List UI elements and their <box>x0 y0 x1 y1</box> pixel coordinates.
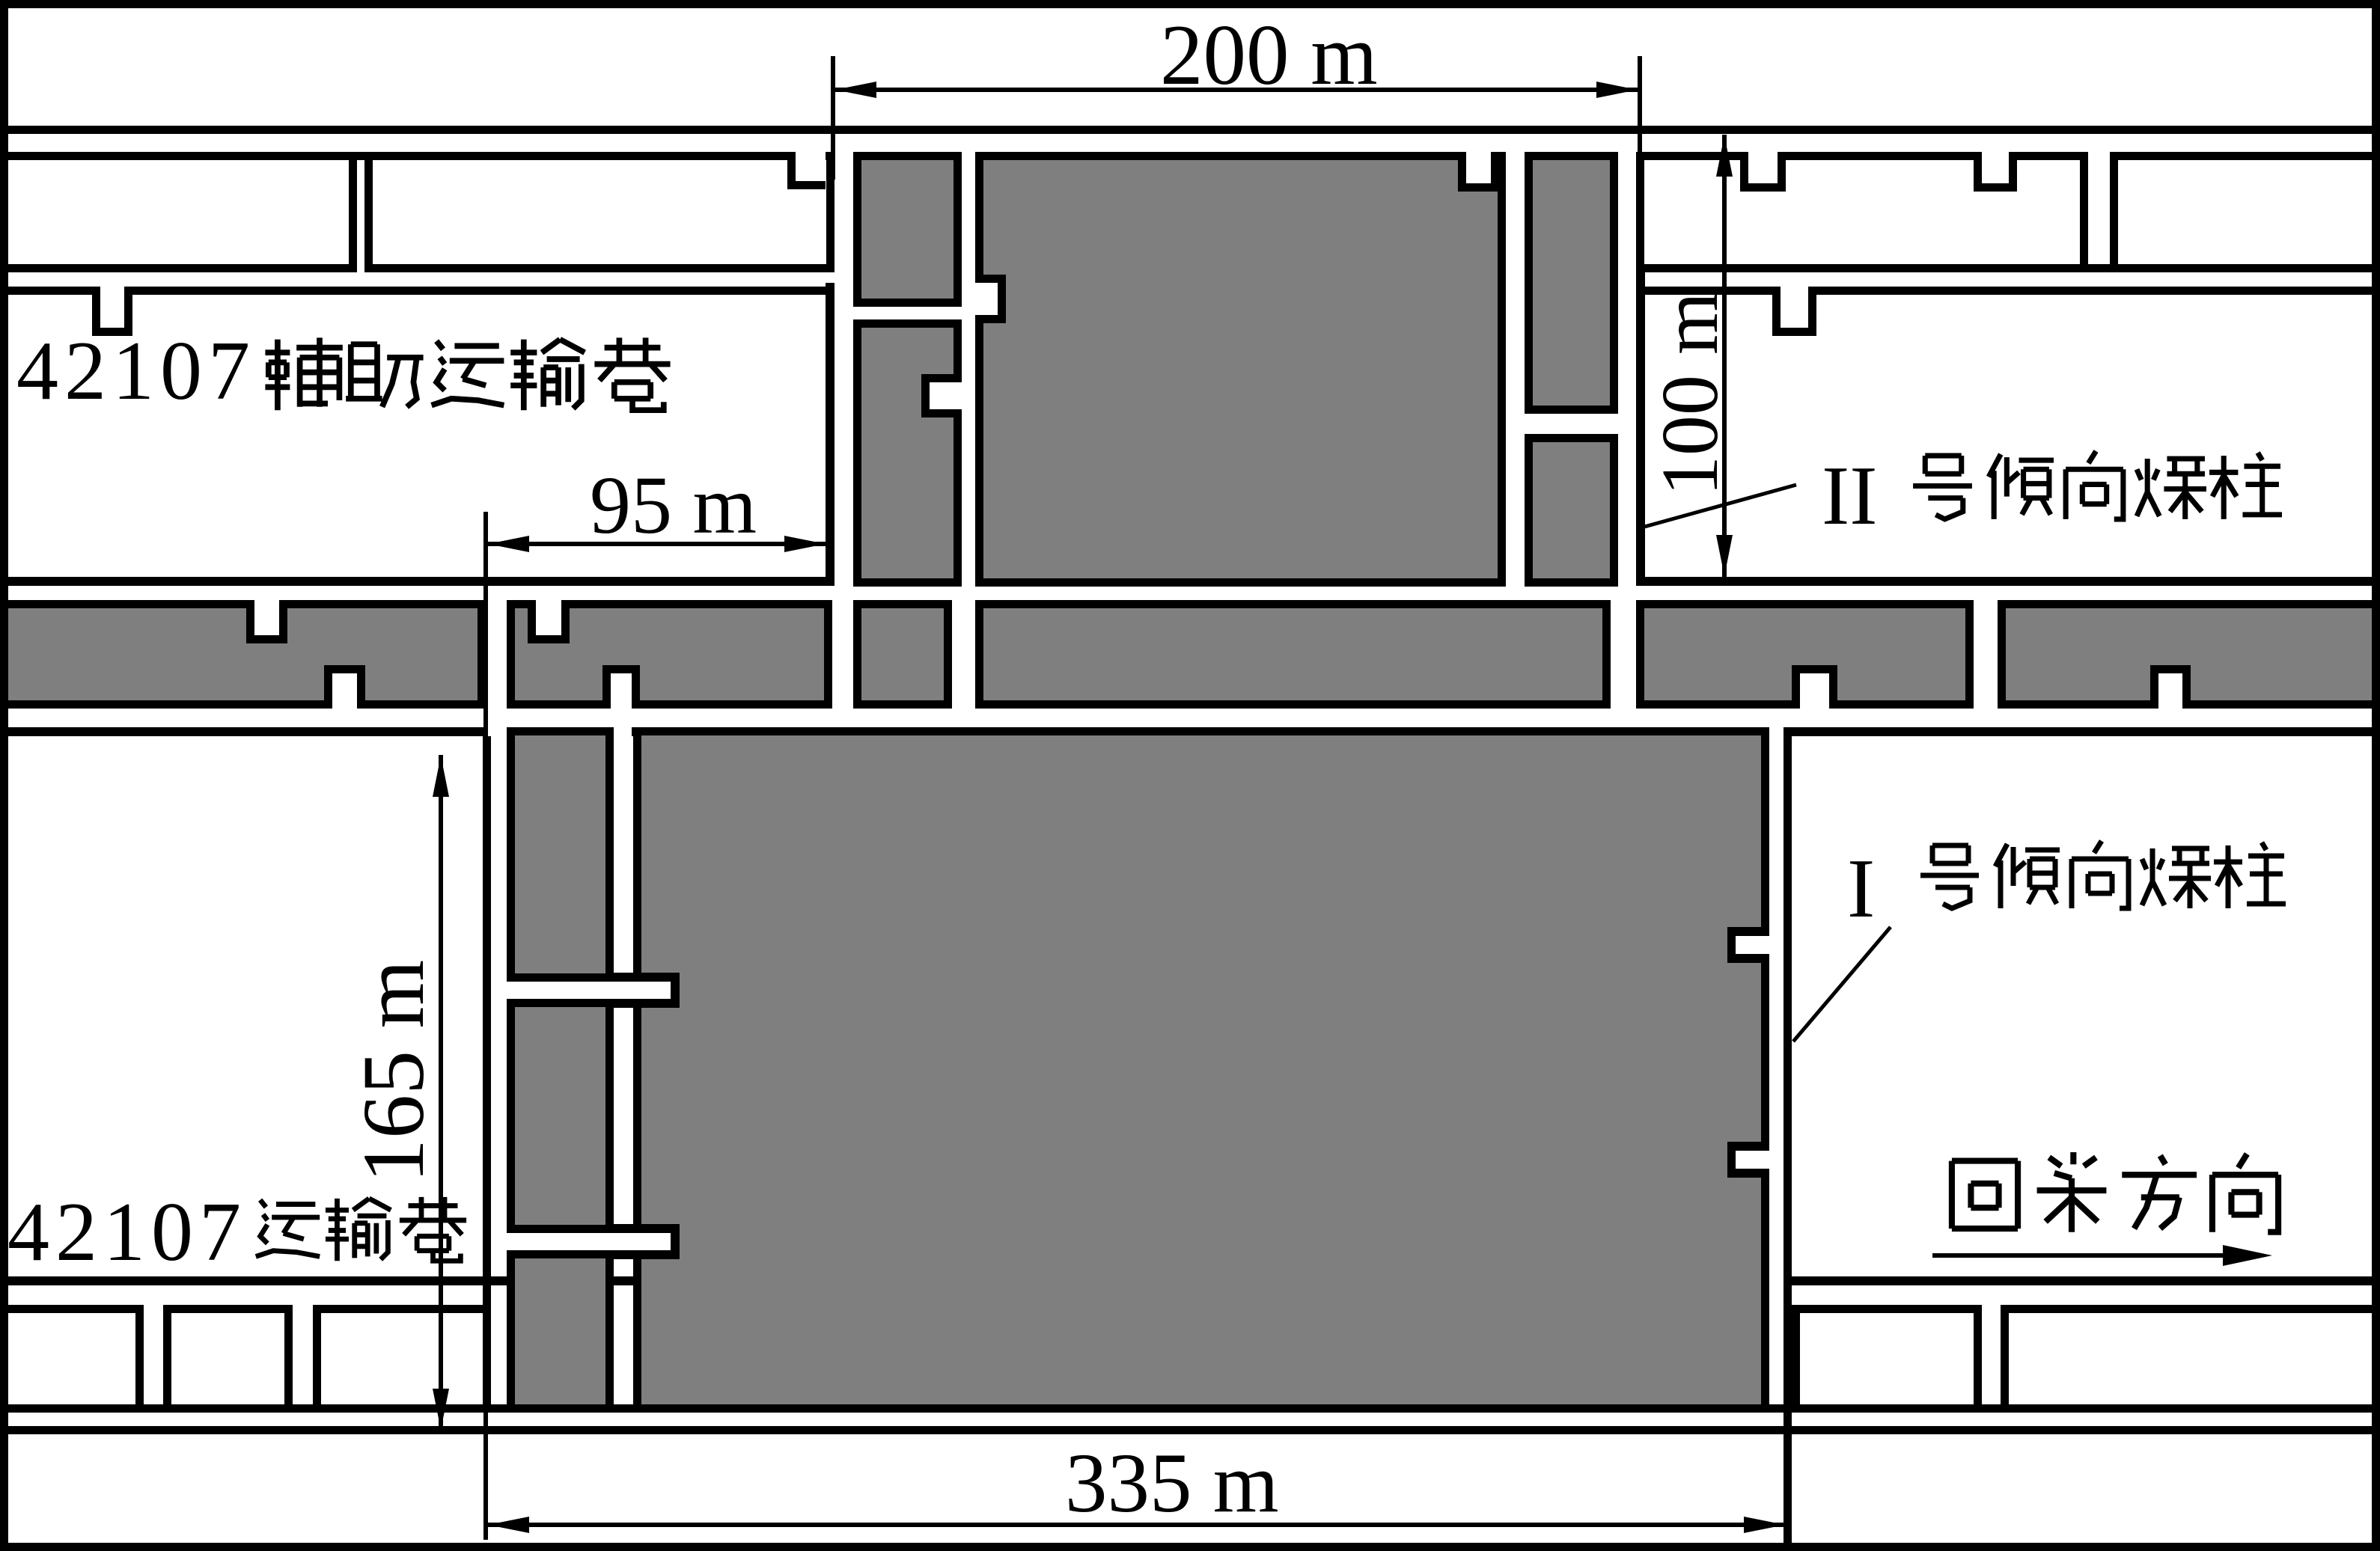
svg-text:I: I <box>1847 842 1875 935</box>
svg-text:42107: 42107 <box>16 325 256 417</box>
svg-text:100 m: 100 m <box>1646 292 1735 496</box>
svg-text:335 m: 335 m <box>1065 1437 1279 1530</box>
svg-text:95 m: 95 m <box>590 459 757 551</box>
svg-text:42107: 42107 <box>7 1186 247 1279</box>
svg-text:200 m: 200 m <box>1160 7 1378 103</box>
svg-text:165 m: 165 m <box>344 960 442 1183</box>
svg-text:II: II <box>1822 450 1878 542</box>
